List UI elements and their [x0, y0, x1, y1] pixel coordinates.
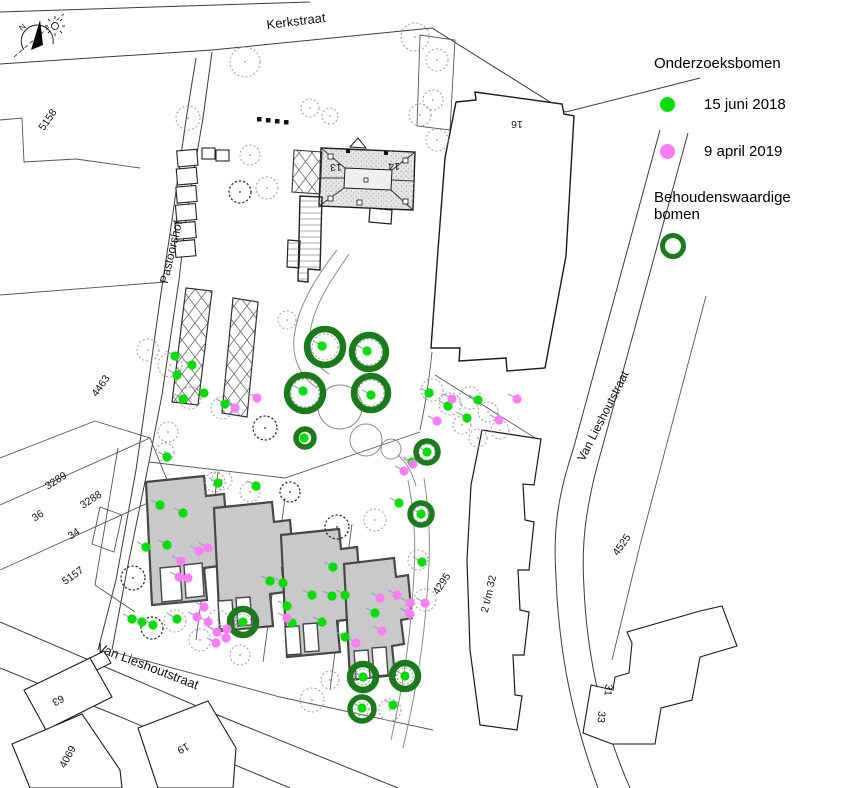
furniture-mark: [275, 119, 280, 124]
terrace-furniture: [257, 117, 289, 125]
survey-dot-2018: [199, 388, 208, 397]
annotation-mark: [384, 700, 390, 703]
annotation-mark: [294, 386, 300, 389]
survey-dot-2019: [351, 638, 360, 647]
tree-center-mark: [329, 115, 331, 117]
parcel-label: 4463: [89, 373, 112, 399]
furniture-mark: [284, 120, 289, 125]
survey-dot-2018: [187, 360, 196, 369]
building-2tm32: [467, 430, 541, 730]
survey-dot-2018: [394, 498, 403, 507]
survey-dot-2018: [238, 617, 247, 626]
survey-dot-2018: [424, 388, 433, 397]
legend-preserve-title: Behoudenswaardige bomen: [654, 190, 829, 223]
survey-dot-2018: [317, 341, 326, 350]
survey-dot-2018: [213, 478, 222, 487]
survey-dot-2019: [230, 403, 239, 412]
survey-dot-2019: [392, 590, 401, 599]
tree-center-mark: [477, 437, 479, 439]
tree-center-mark: [419, 114, 421, 116]
tree-center-mark: [289, 491, 291, 493]
tree-center-mark: [389, 709, 391, 711]
tree-center-mark: [244, 61, 246, 63]
legend-item-label: 9 april 2019: [704, 143, 782, 160]
survey-dot-2018: [340, 590, 349, 599]
annotation-mark: [390, 498, 396, 501]
survey-dot-2018: [178, 508, 187, 517]
hatched-court: [292, 150, 322, 194]
survey-dot-2018: [220, 399, 229, 408]
tree-center-mark: [469, 397, 471, 399]
annotation-mark: [158, 452, 164, 455]
survey-dot-2018: [317, 617, 326, 626]
annotation-mark: [168, 614, 174, 617]
survey-dot-2018: [172, 370, 181, 379]
survey-dot-2019: [212, 627, 221, 636]
annotation-mark: [166, 351, 172, 354]
compass-needle: [31, 20, 43, 50]
survey-dot-2018: [358, 672, 367, 681]
legend-item-2018: 15 juni 2018: [660, 96, 850, 113]
tree-center-mark: [432, 99, 434, 101]
street-label: Van Lieshoutstraat: [95, 640, 201, 693]
survey-dot-2019: [432, 416, 441, 425]
annotation-mark: [458, 413, 464, 416]
furniture-mark: [257, 117, 262, 122]
compass-north-label: N: [17, 22, 27, 33]
survey-dot-2018: [282, 601, 291, 610]
annotation-mark: [395, 466, 401, 469]
parcel-label: 36: [30, 508, 46, 525]
parcel-label: 16: [511, 118, 523, 130]
annotation-mark: [216, 399, 222, 402]
survey-dot-2019: [399, 466, 408, 475]
annotation-mark: [208, 627, 214, 630]
survey-dot-2019: [512, 394, 521, 403]
tree-center-mark: [487, 411, 489, 413]
annotation-mark: [413, 557, 419, 560]
tree-center-mark: [374, 519, 376, 521]
annotation-mark: [278, 613, 284, 616]
survey-dot-2018: [400, 671, 409, 680]
survey-dot-2019: [211, 638, 220, 647]
annotation-mark: [439, 401, 445, 404]
survey-dot-2019: [404, 608, 413, 617]
legend-item-2019: 9 april 2019: [660, 143, 850, 160]
survey-dot-2019: [252, 393, 261, 402]
annotation-mark: [416, 598, 422, 601]
survey-dot-2019: [183, 573, 192, 582]
green-dot-icon: [660, 97, 675, 112]
tree-center-mark: [266, 187, 268, 189]
survey-dot-2019: [447, 394, 456, 403]
survey-dot-2019: [199, 602, 208, 611]
parcel-label: 34: [66, 526, 82, 543]
tree-center-mark: [461, 424, 463, 426]
tree-center-mark: [264, 427, 266, 429]
tree-center-mark: [414, 36, 416, 38]
annotation-mark: [313, 341, 319, 344]
church-gable: [350, 138, 366, 148]
survey-dot-2018: [422, 447, 431, 456]
parcel-label: 4295: [431, 571, 454, 597]
survey-dot-2018: [162, 540, 171, 549]
church-annex: [369, 208, 392, 224]
survey-dot-2018: [137, 617, 146, 626]
parcel-label: 5157: [60, 564, 86, 587]
street-label: Kerkstraat: [266, 10, 327, 32]
survey-dot-2019: [408, 459, 417, 468]
survey-dot-2018: [357, 703, 366, 712]
annotation-mark: [247, 481, 253, 484]
legend: Onderzoeksbomen 15 juni 2018 9 april 201…: [652, 55, 850, 259]
survey-dot-2019: [192, 612, 201, 621]
garden-lots-divider: [149, 432, 420, 478]
parcel-divider: [0, 282, 165, 295]
tree-center-mark: [286, 319, 288, 321]
survey-dot-2018: [370, 608, 379, 617]
tree-center-mark: [436, 59, 438, 61]
tree-center-mark: [199, 639, 201, 641]
survey-dot-2019: [174, 572, 183, 581]
survey-dot-2019: [420, 598, 429, 607]
annotation-mark: [428, 416, 434, 419]
sun-icon: [45, 16, 65, 36]
tree-center-mark: [249, 154, 251, 156]
tree-center-mark: [132, 577, 134, 579]
survey-dot-2018: [172, 614, 181, 623]
survey-dot-2019: [203, 543, 212, 552]
tree-center-mark: [189, 397, 191, 399]
survey-dot-2018: [307, 590, 316, 599]
annotation-mark: [443, 394, 449, 397]
legend-title: Onderzoeksbomen: [654, 55, 850, 72]
survey-dot-2018: [170, 351, 179, 360]
survey-dot-2018: [148, 620, 157, 629]
house-1-porch: [160, 566, 182, 602]
parcel-grid-line: [95, 448, 118, 585]
road-edge: [0, 2, 310, 12]
parcel-label: 31: [602, 684, 615, 697]
survey-dot-2018: [265, 576, 274, 585]
survey-dot-2018: [127, 614, 136, 623]
survey-dot-2019: [494, 415, 503, 424]
survey-dot-2018: [416, 509, 425, 518]
street-label: Van Lieshoutstraat: [574, 368, 632, 463]
parking-strip-west: [172, 288, 212, 405]
magenta-dot-icon: [660, 144, 675, 159]
annotation-mark: [168, 370, 174, 373]
survey-dot-2018: [155, 500, 164, 509]
legend-item-label: 15 juni 2018: [704, 96, 786, 113]
survey-dot-2018: [362, 346, 371, 355]
site-plan-page: KerkstraatPastoorshofVan LieshoutstraatV…: [0, 0, 850, 788]
survey-dot-2019: [176, 556, 185, 565]
parcel-grid-line: [0, 438, 150, 505]
survey-dot-2018: [299, 433, 308, 442]
tree-center-mark: [239, 191, 241, 193]
north-arrow: N: [14, 14, 65, 57]
house-3-porch: [285, 626, 301, 655]
annotation-mark: [123, 614, 129, 617]
tree-center-mark: [336, 526, 338, 528]
building-16: [431, 92, 574, 371]
tree-center-mark: [147, 349, 149, 351]
survey-dot-2018: [251, 481, 260, 490]
survey-dot-2019: [203, 617, 212, 626]
survey-dot-2018: [388, 700, 397, 709]
annotation-mark: [137, 542, 143, 545]
survey-dot-2018: [366, 390, 375, 399]
tree-center-mark: [309, 107, 311, 109]
house-3-porch: [303, 623, 319, 652]
annotation-mark: [207, 638, 213, 641]
survey-dot-2019: [194, 546, 203, 555]
parcel-4525-line: [612, 296, 706, 660]
survey-dot-2018: [298, 386, 307, 395]
kerkstraat-site-boundary: [212, 28, 700, 112]
annotation-mark: [358, 346, 364, 349]
survey-dot-2018: [462, 413, 471, 422]
tree-center-mark: [249, 491, 251, 493]
furniture-mark: [266, 118, 271, 123]
kerkstraat-edge: [0, 50, 212, 64]
tree-center-mark: [167, 431, 169, 433]
survey-dot-2019: [375, 593, 384, 602]
annotation-mark: [490, 415, 496, 418]
parcel-label: 33: [595, 711, 608, 724]
survey-dot-2018: [278, 578, 287, 587]
survey-dot-2018: [328, 562, 337, 571]
preserve-ring-icon: [660, 233, 686, 259]
survey-dot-2019: [405, 598, 414, 607]
tree-center-mark: [169, 364, 171, 366]
tree-center-mark: [499, 429, 501, 431]
survey-dot-2018: [417, 557, 426, 566]
parcel-label: 5158: [36, 107, 59, 133]
survey-dot-2018: [162, 452, 171, 461]
parcel-label: 3288: [78, 489, 104, 512]
survey-dot-2018: [178, 394, 187, 403]
parcel-grid-line: [0, 421, 95, 458]
tree-center-mark: [329, 679, 331, 681]
survey-dot-2018: [327, 591, 336, 600]
parcel-label: 4525: [610, 532, 633, 558]
survey-dot-2018: [340, 632, 349, 641]
annotation-mark: [195, 602, 201, 605]
survey-dot-2019: [282, 613, 291, 622]
annotation-mark: [508, 394, 514, 397]
church-building: [319, 138, 415, 224]
tree-center-mark: [436, 139, 438, 141]
church-extension: [298, 196, 322, 282]
annotation-mark: [278, 601, 284, 604]
parcel-label: 3289: [43, 470, 69, 493]
parcel-5158-line: [0, 118, 140, 168]
tree-center-mark: [239, 654, 241, 656]
parcel-label: 14: [388, 160, 400, 172]
tree-center-mark: [187, 117, 189, 119]
church-extension-foot: [287, 240, 300, 268]
survey-dot-2019: [377, 626, 386, 635]
survey-dot-2018: [141, 542, 150, 551]
annotation-mark: [362, 390, 368, 393]
survey-dot-2019: [222, 624, 231, 633]
survey-dot-2018: [473, 395, 482, 404]
parcel-label: 13: [330, 161, 342, 173]
annotation-mark: [188, 612, 194, 615]
tree-center-mark: [311, 699, 313, 701]
survey-dot-2019: [221, 633, 230, 642]
tree-center-mark: [217, 619, 219, 621]
